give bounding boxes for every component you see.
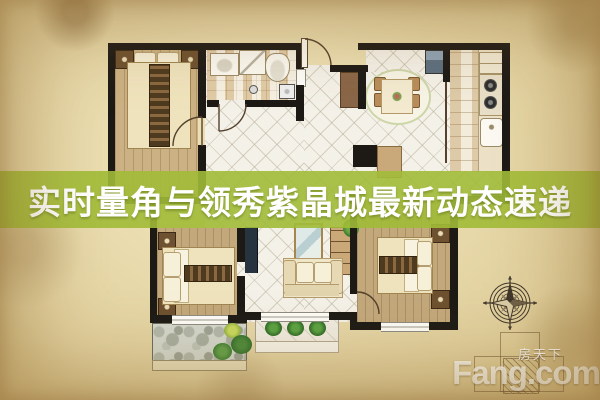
headline-text: 实时量角与领秀紫晶城最新动态速递 xyxy=(28,176,572,224)
compass-rose-icon xyxy=(482,275,538,331)
headline-banner: 实时量角与领秀紫晶城最新动态速递 xyxy=(0,171,600,228)
fang-logo-text: Fang.com xyxy=(452,354,600,392)
floorplan-promo-image: 房天下 Fang.com 实时量角与领秀紫晶城最新动态速递 xyxy=(0,0,600,400)
fang-watermark: 房天下 Fang.com xyxy=(452,328,600,398)
